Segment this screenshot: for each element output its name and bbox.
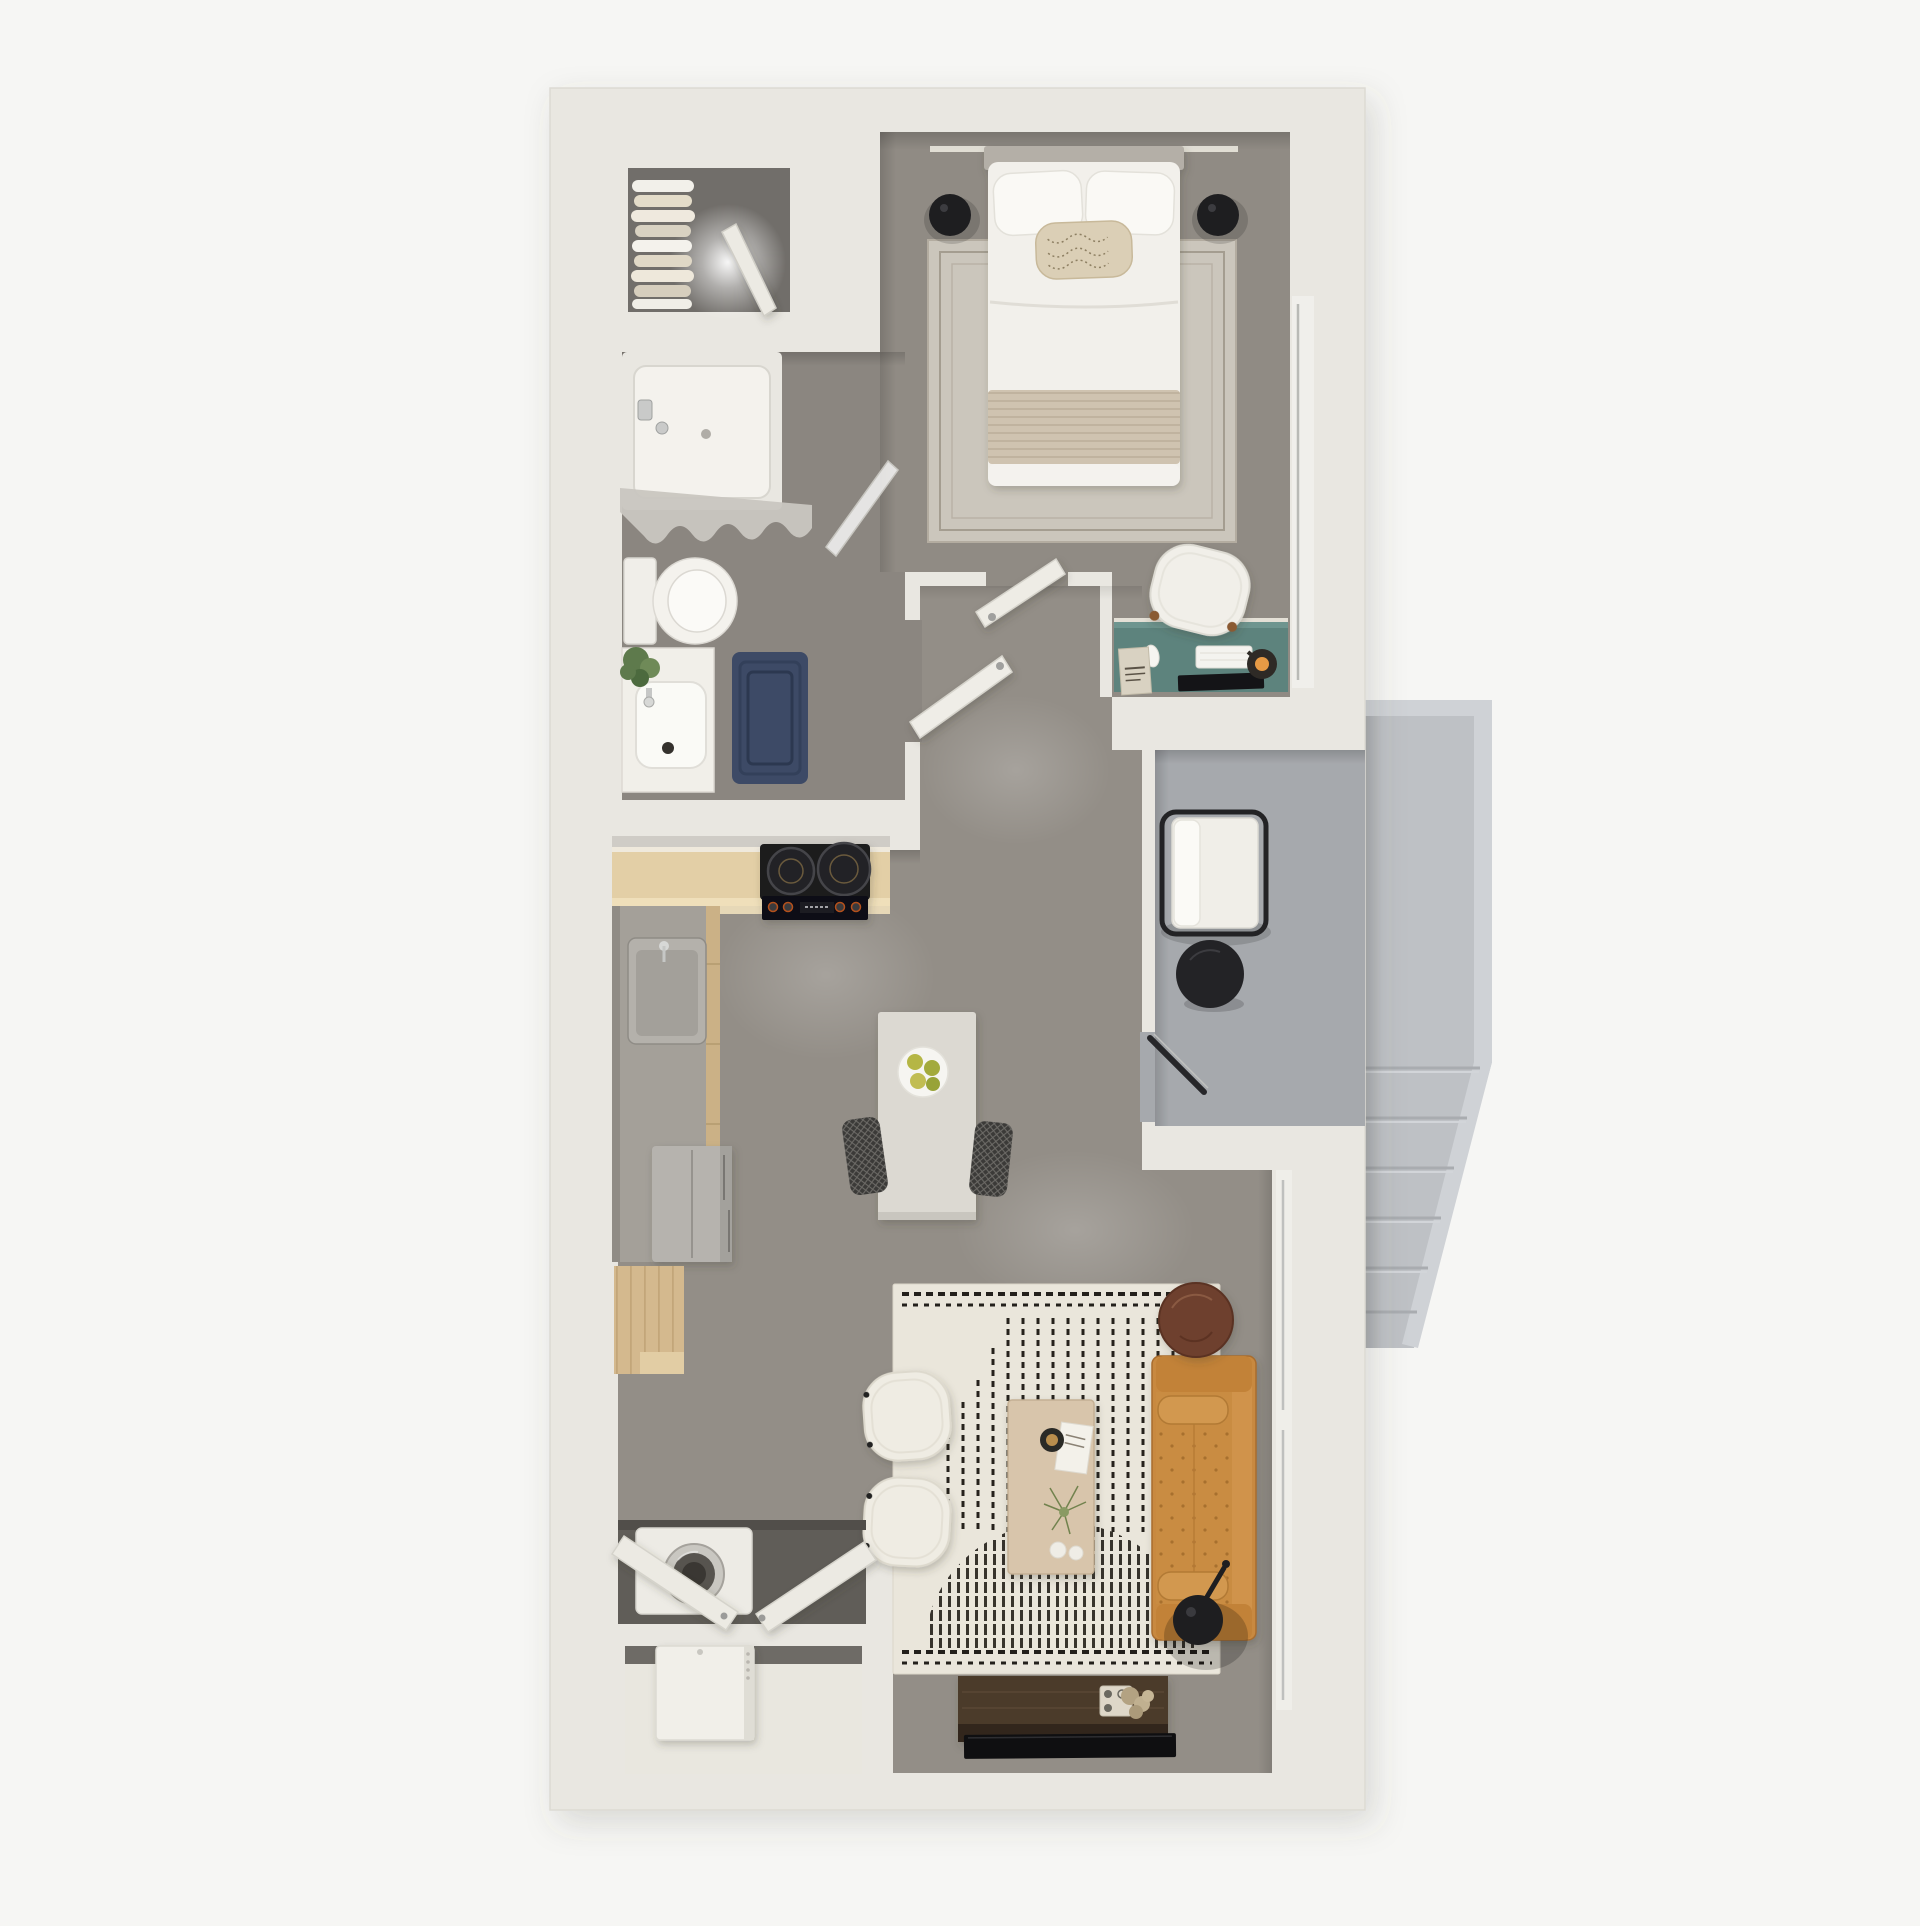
side-table [1159, 1283, 1233, 1357]
throw-blanket [988, 390, 1180, 464]
floor-plan-stage [0, 0, 1920, 1926]
sink-drain [662, 742, 674, 754]
armchair-left [861, 1369, 953, 1463]
double-bed [984, 146, 1184, 486]
bar-stool-right [968, 1120, 1014, 1198]
floor-plan-canvas [0, 0, 1920, 1926]
sofa-backrest [1232, 1364, 1252, 1632]
toilet [624, 558, 737, 644]
monitor [1178, 672, 1265, 691]
tub-handle [656, 422, 668, 434]
accent-pillow [1035, 220, 1133, 279]
sofa-bolster-top [1158, 1396, 1228, 1424]
pantry-cabinet [614, 1266, 684, 1374]
heater-pipe [697, 1649, 703, 1655]
sofa-armrest-top [1156, 1356, 1252, 1392]
door-handle [988, 613, 996, 621]
door-handle [759, 1615, 766, 1622]
living-window [1276, 1170, 1292, 1710]
coffee-table [1008, 1400, 1094, 1574]
bath-mat [732, 652, 808, 784]
landing-curb-east [1474, 700, 1492, 1062]
utility-closet [656, 1646, 754, 1740]
tub-drain [701, 429, 711, 439]
armchair-right [862, 1476, 952, 1568]
island-table [878, 1012, 976, 1220]
bedroom-window [1292, 296, 1314, 688]
refrigerator [652, 1146, 732, 1262]
water-heater [656, 1646, 754, 1740]
magazine [1118, 647, 1151, 695]
lounge-chair [1161, 812, 1271, 946]
landing-curb-top [1360, 700, 1492, 716]
round-side-table [1176, 940, 1244, 1012]
mattress-foot [988, 464, 1180, 486]
keyboard [1196, 646, 1252, 668]
tub-faucet [638, 400, 652, 420]
hanging-clothes [631, 180, 695, 309]
kitchen-sink [628, 938, 706, 1044]
desk-lamp [1247, 649, 1277, 679]
living-east-shadow [1258, 1170, 1272, 1773]
media-console [958, 1676, 1168, 1742]
cooktop [760, 843, 870, 920]
lounge-pillow [1174, 820, 1200, 926]
fruit-plate [898, 1047, 948, 1097]
door-handle [996, 662, 1004, 670]
door-handle [721, 1613, 728, 1620]
counter-west-shade [612, 906, 620, 1262]
tv [964, 1733, 1176, 1759]
balcony-north-shadow [1155, 750, 1365, 764]
